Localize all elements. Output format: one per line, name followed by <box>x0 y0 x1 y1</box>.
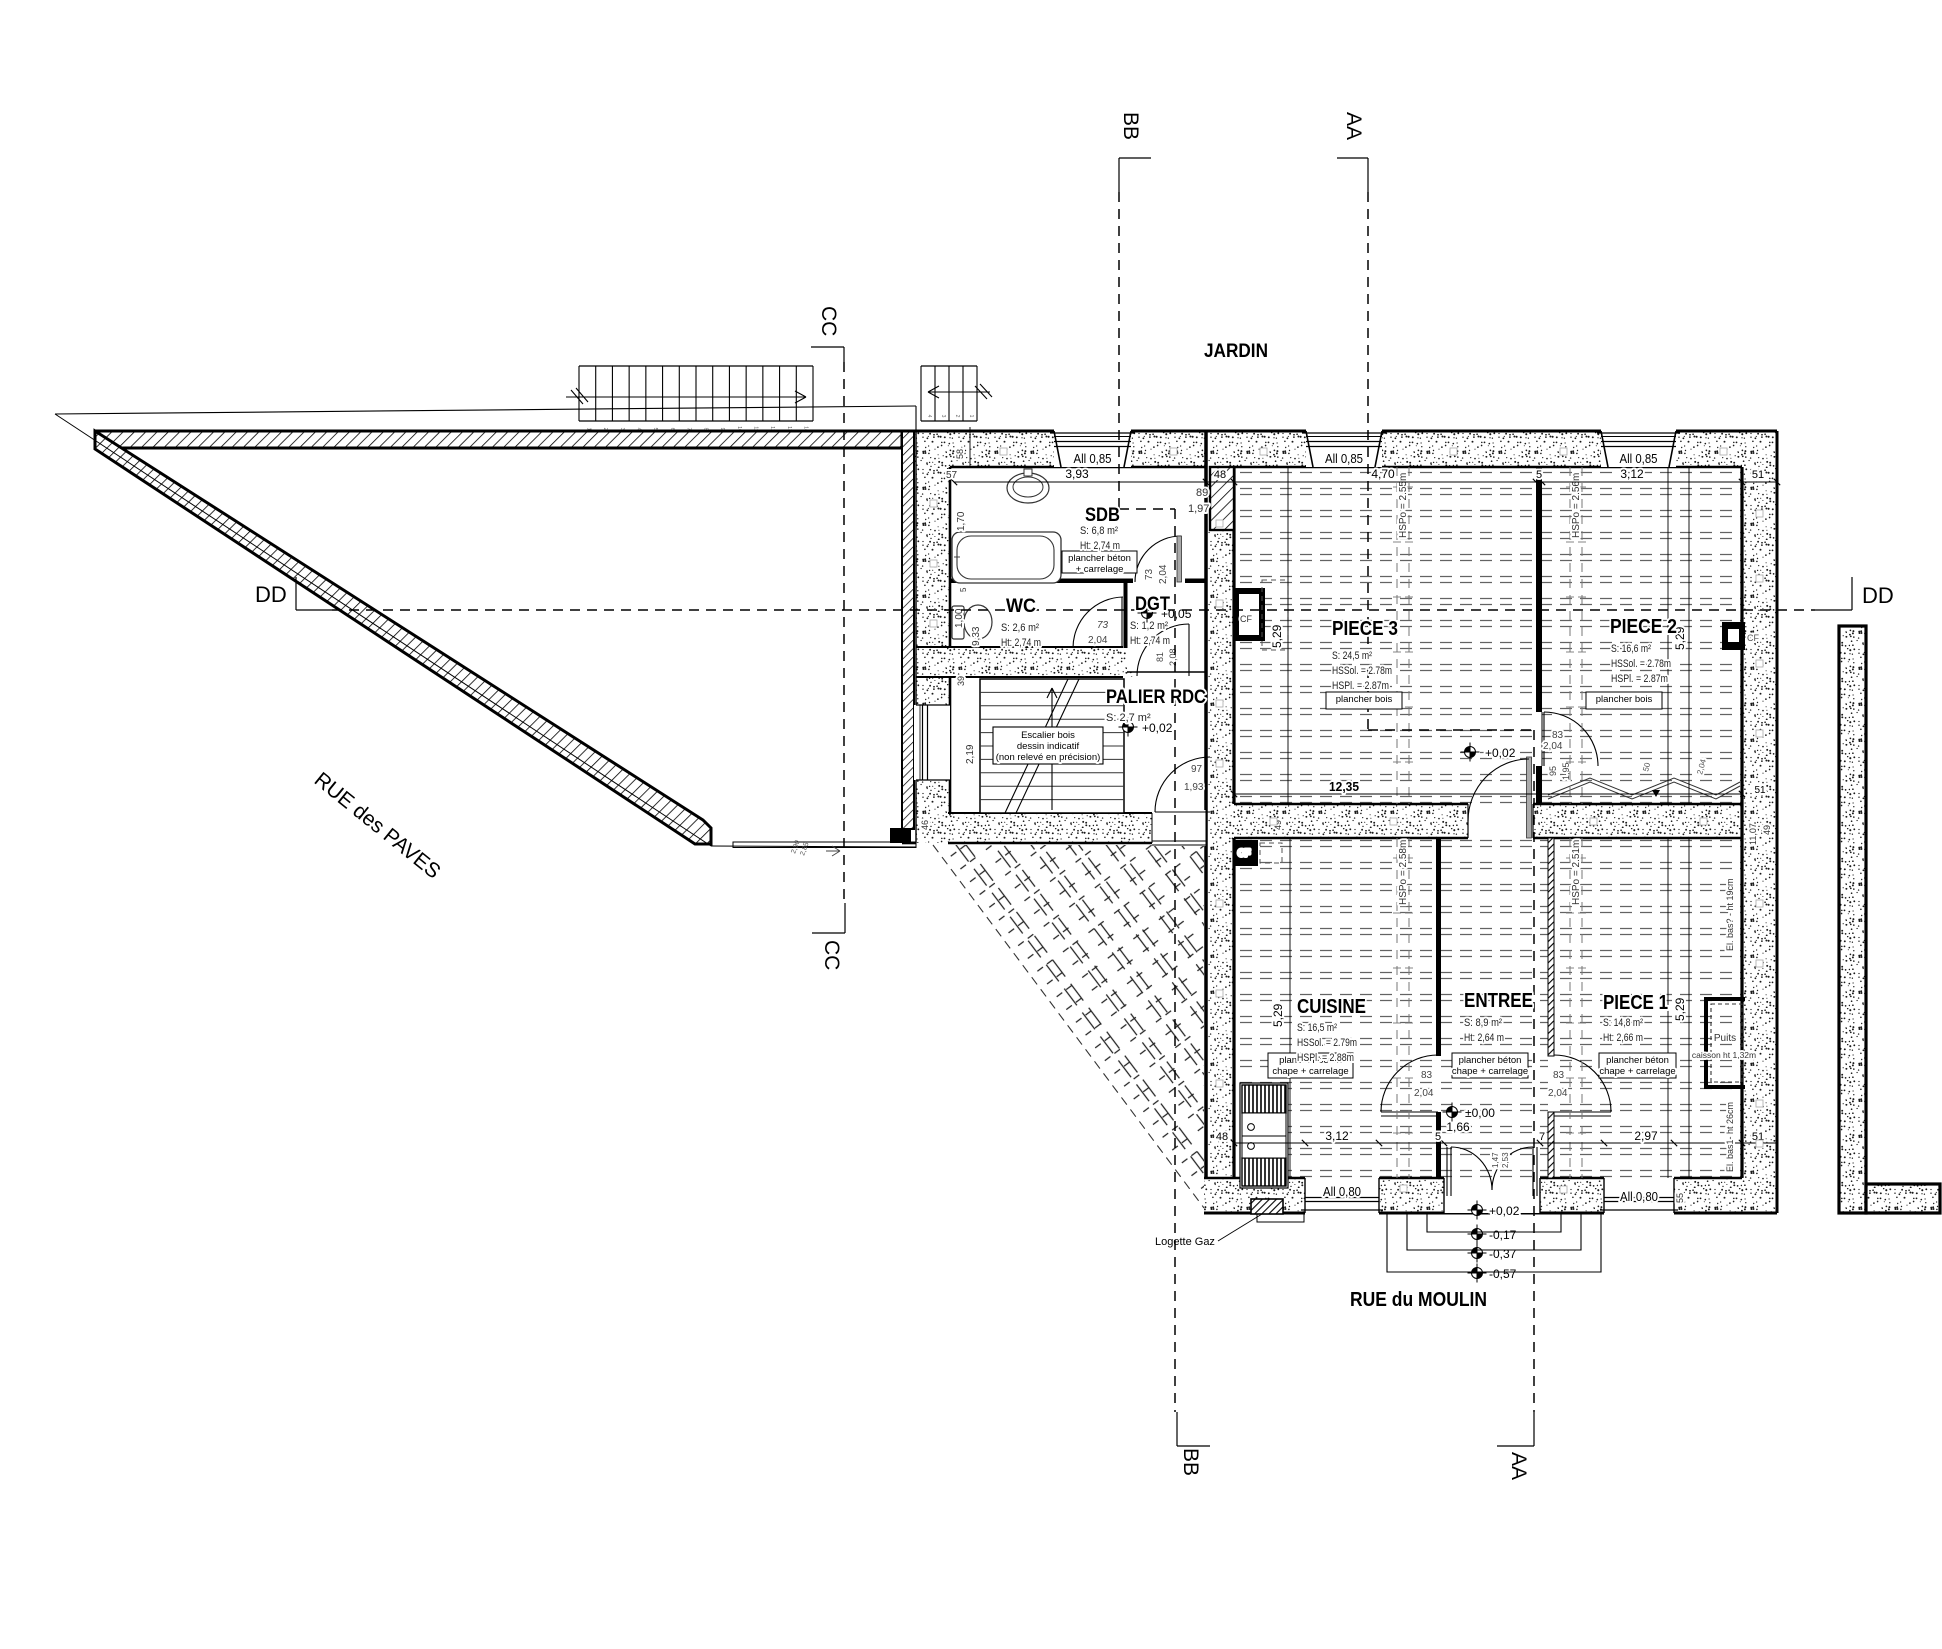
svg-text:CF: CF <box>1747 633 1759 643</box>
svg-text:AA: AA <box>1342 112 1365 140</box>
svg-text:2,97: 2,97 <box>1634 1129 1658 1143</box>
svg-text:All 0,85: All 0,85 <box>1620 452 1658 466</box>
svg-text:89: 89 <box>1196 487 1208 499</box>
svg-text:+0,02: +0,02 <box>1489 1204 1520 1218</box>
svg-text:-0,17: -0,17 <box>1489 1228 1517 1242</box>
svg-text:plancher béton: plancher béton <box>1459 1055 1522 1066</box>
svg-text:Logette Gaz: Logette Gaz <box>1155 1236 1215 1248</box>
svg-text:Ht: 2,74 m: Ht: 2,74 m <box>1080 540 1120 552</box>
svg-text:5,29: 5,29 <box>1271 1003 1285 1027</box>
svg-text:caisson ht 1,32m: caisson ht 1,32m <box>1692 1050 1756 1060</box>
svg-text:plancher béton: plancher béton <box>1606 1055 1669 1066</box>
svg-text:plancher bois: plancher bois <box>1336 694 1393 705</box>
svg-text:81: 81 <box>1155 652 1165 662</box>
svg-text:HSPo = 2.51m: HSPo = 2.51m <box>1571 840 1582 905</box>
svg-text:-0,57: -0,57 <box>1489 1267 1517 1281</box>
svg-text:S: 2,7 m²: S: 2,7 m² <box>1106 712 1151 724</box>
svg-text:48: 48 <box>1214 469 1226 481</box>
svg-text:S: 16,5 m²: S: 16,5 m² <box>1297 1022 1337 1034</box>
svg-text:S: 14,8 m²: S: 14,8 m² <box>1603 1017 1643 1029</box>
svg-text:73: 73 <box>1144 568 1155 580</box>
svg-text:5: 5 <box>1435 1131 1441 1143</box>
svg-text:±0,00: ±0,00 <box>1465 1106 1495 1120</box>
svg-text:11,07: 11,07 <box>1748 823 1758 845</box>
svg-text:2,04: 2,04 <box>1548 1088 1568 1099</box>
svg-text:HSSol. = 2.78m: HSSol. = 2.78m <box>1332 665 1392 677</box>
svg-text:2,04: 2,04 <box>1543 741 1563 752</box>
svg-text:S: 1,2 m²: S: 1,2 m² <box>1130 620 1168 632</box>
svg-text:SDB: SDB <box>1085 505 1120 526</box>
svg-text:2: 2 <box>954 415 960 418</box>
svg-text:51: 51 <box>1754 785 1766 796</box>
svg-text:Ht: 2,74 m: Ht: 2,74 m <box>1001 637 1041 649</box>
svg-text:48: 48 <box>1216 1131 1228 1143</box>
svg-text:1,66: 1,66 <box>1446 1120 1470 1134</box>
svg-text:3,93: 3,93 <box>1065 467 1089 481</box>
svg-text:-0,37: -0,37 <box>1489 1247 1517 1261</box>
svg-text:4: 4 <box>926 415 932 418</box>
svg-text:2,04: 2,04 <box>1088 635 1108 646</box>
svg-text:5,29: 5,29 <box>1673 997 1687 1021</box>
svg-text:1,97: 1,97 <box>1188 503 1209 515</box>
svg-text:HSPl. = 2.88m: HSPl. = 2.88m <box>1297 1052 1354 1064</box>
svg-text:PIECE 1: PIECE 1 <box>1603 992 1668 1014</box>
svg-text:Puits: Puits <box>1714 1033 1736 1044</box>
svg-text:ENTREE: ENTREE <box>1464 990 1533 1012</box>
svg-text:AA: AA <box>1507 1452 1530 1480</box>
svg-text:Ht: 2,66 m: Ht: 2,66 m <box>1603 1032 1643 1044</box>
svg-text:3,12: 3,12 <box>1620 467 1644 481</box>
svg-text:95: 95 <box>1548 766 1558 776</box>
svg-text:BB: BB <box>1119 112 1142 140</box>
svg-text:DGT: DGT <box>1135 594 1170 615</box>
svg-text:plancher bois: plancher bois <box>1596 694 1653 705</box>
svg-text:2,04: 2,04 <box>1414 1088 1434 1099</box>
svg-text:1,70: 1,70 <box>956 511 967 531</box>
svg-text:7: 7 <box>1539 1131 1545 1143</box>
svg-text:4,70: 4,70 <box>1371 467 1395 481</box>
svg-text:49: 49 <box>1762 825 1772 835</box>
svg-text:(non relevé en précision): (non relevé en précision) <box>996 752 1101 763</box>
svg-text:WC: WC <box>1006 596 1036 617</box>
svg-text:PIECE 2: PIECE 2 <box>1610 616 1677 638</box>
svg-text:+0,02: +0,02 <box>1485 746 1516 760</box>
svg-text:El. bas? - ht 19cm: El. bas? - ht 19cm <box>1725 878 1735 951</box>
svg-text:RUE du MOULIN: RUE du MOULIN <box>1350 1289 1487 1311</box>
svg-text:57: 57 <box>946 470 958 481</box>
svg-text:46: 46 <box>920 820 930 830</box>
svg-text:DD: DD <box>1862 583 1894 608</box>
svg-text:1,00: 1,00 <box>954 608 965 628</box>
svg-text:Ht: 2,74 m: Ht: 2,74 m <box>1130 635 1170 647</box>
svg-text:2,53: 2,53 <box>1501 1152 1510 1168</box>
svg-text:El. bas1- ht 26cm: El. bas1- ht 26cm <box>1725 1102 1735 1172</box>
svg-text:PALIER RDC: PALIER RDC <box>1106 687 1206 708</box>
svg-text:97: 97 <box>1191 764 1203 775</box>
svg-text:PIECE 3: PIECE 3 <box>1332 618 1398 640</box>
svg-text:83: 83 <box>1552 730 1564 741</box>
svg-text:5,29: 5,29 <box>1270 624 1284 648</box>
svg-text:83: 83 <box>1553 1070 1565 1081</box>
svg-text:2,19: 2,19 <box>965 744 976 764</box>
svg-text:CF: CF <box>1240 614 1252 624</box>
svg-text:2,04: 2,04 <box>1158 564 1169 584</box>
svg-text:3: 3 <box>940 415 946 418</box>
svg-text:All 0,85: All 0,85 <box>1074 452 1112 466</box>
svg-text:5: 5 <box>959 587 968 592</box>
svg-text:+ carrelage: + carrelage <box>1076 564 1124 575</box>
svg-text:BB: BB <box>1179 1448 1202 1476</box>
svg-text:HSSol. = 2.78m: HSSol. = 2.78m <box>1611 658 1671 670</box>
svg-text:1: 1 <box>968 415 974 418</box>
svg-text:S: 6,8 m²: S: 6,8 m² <box>1080 525 1118 537</box>
svg-text:5: 5 <box>1536 469 1542 481</box>
svg-text:S: 16,6 m²: S: 16,6 m² <box>1611 643 1651 655</box>
svg-text:dessin indicatif: dessin indicatif <box>1017 741 1080 752</box>
svg-text:plancher béton: plancher béton <box>1068 553 1131 564</box>
svg-text:12,35: 12,35 <box>1329 779 1359 794</box>
svg-text:All 0,80: All 0,80 <box>1620 1190 1658 1204</box>
svg-text:HSPl. = 2.87m: HSPl. = 2.87m <box>1332 680 1389 692</box>
svg-text:CF: CF <box>1238 848 1250 858</box>
svg-text:CC: CC <box>817 306 840 336</box>
svg-text:S: 8,9 m²: S: 8,9 m² <box>1464 1017 1502 1029</box>
svg-text:1,47: 1,47 <box>1491 1152 1500 1168</box>
svg-text:9,33: 9,33 <box>971 626 982 646</box>
svg-text:Ht: 2,64 m: Ht: 2,64 m <box>1464 1032 1504 1044</box>
svg-text:chape + carrelage: chape + carrelage <box>1272 1066 1348 1077</box>
svg-text:83: 83 <box>1421 1070 1433 1081</box>
svg-text:S: 24,5 m²: S: 24,5 m² <box>1332 650 1372 662</box>
svg-text:55: 55 <box>1675 1193 1685 1203</box>
svg-text:chape + carrelage: chape + carrelage <box>1452 1066 1528 1077</box>
svg-text:73: 73 <box>1097 620 1109 631</box>
svg-text:2,08: 2,08 <box>1168 648 1178 666</box>
svg-text:All 0,80: All 0,80 <box>1323 1185 1361 1199</box>
svg-text:Escalier bois: Escalier bois <box>1021 730 1075 741</box>
svg-text:3,12: 3,12 <box>1325 1129 1349 1143</box>
svg-text:39: 39 <box>956 676 966 686</box>
svg-text:CUISINE: CUISINE <box>1297 996 1366 1018</box>
svg-text:S: 2,6 m²: S: 2,6 m² <box>1001 622 1039 634</box>
svg-text:chape + carrelage: chape + carrelage <box>1599 1066 1675 1077</box>
svg-text:1,93: 1,93 <box>1184 782 1204 793</box>
svg-text:All 0,85: All 0,85 <box>1325 452 1363 466</box>
svg-text:HSSol. = 2.79m: HSSol. = 2.79m <box>1297 1037 1357 1049</box>
svg-text:CC: CC <box>820 940 843 970</box>
svg-text:JARDIN: JARDIN <box>1204 341 1268 362</box>
svg-text:HSPl. = 2.87m: HSPl. = 2.87m <box>1611 673 1668 685</box>
svg-text:HSPo = 2.58m: HSPo = 2.58m <box>1398 840 1409 905</box>
svg-text:DD: DD <box>255 582 287 607</box>
svg-text:51: 51 <box>1752 469 1764 481</box>
svg-text:58: 58 <box>955 449 965 459</box>
